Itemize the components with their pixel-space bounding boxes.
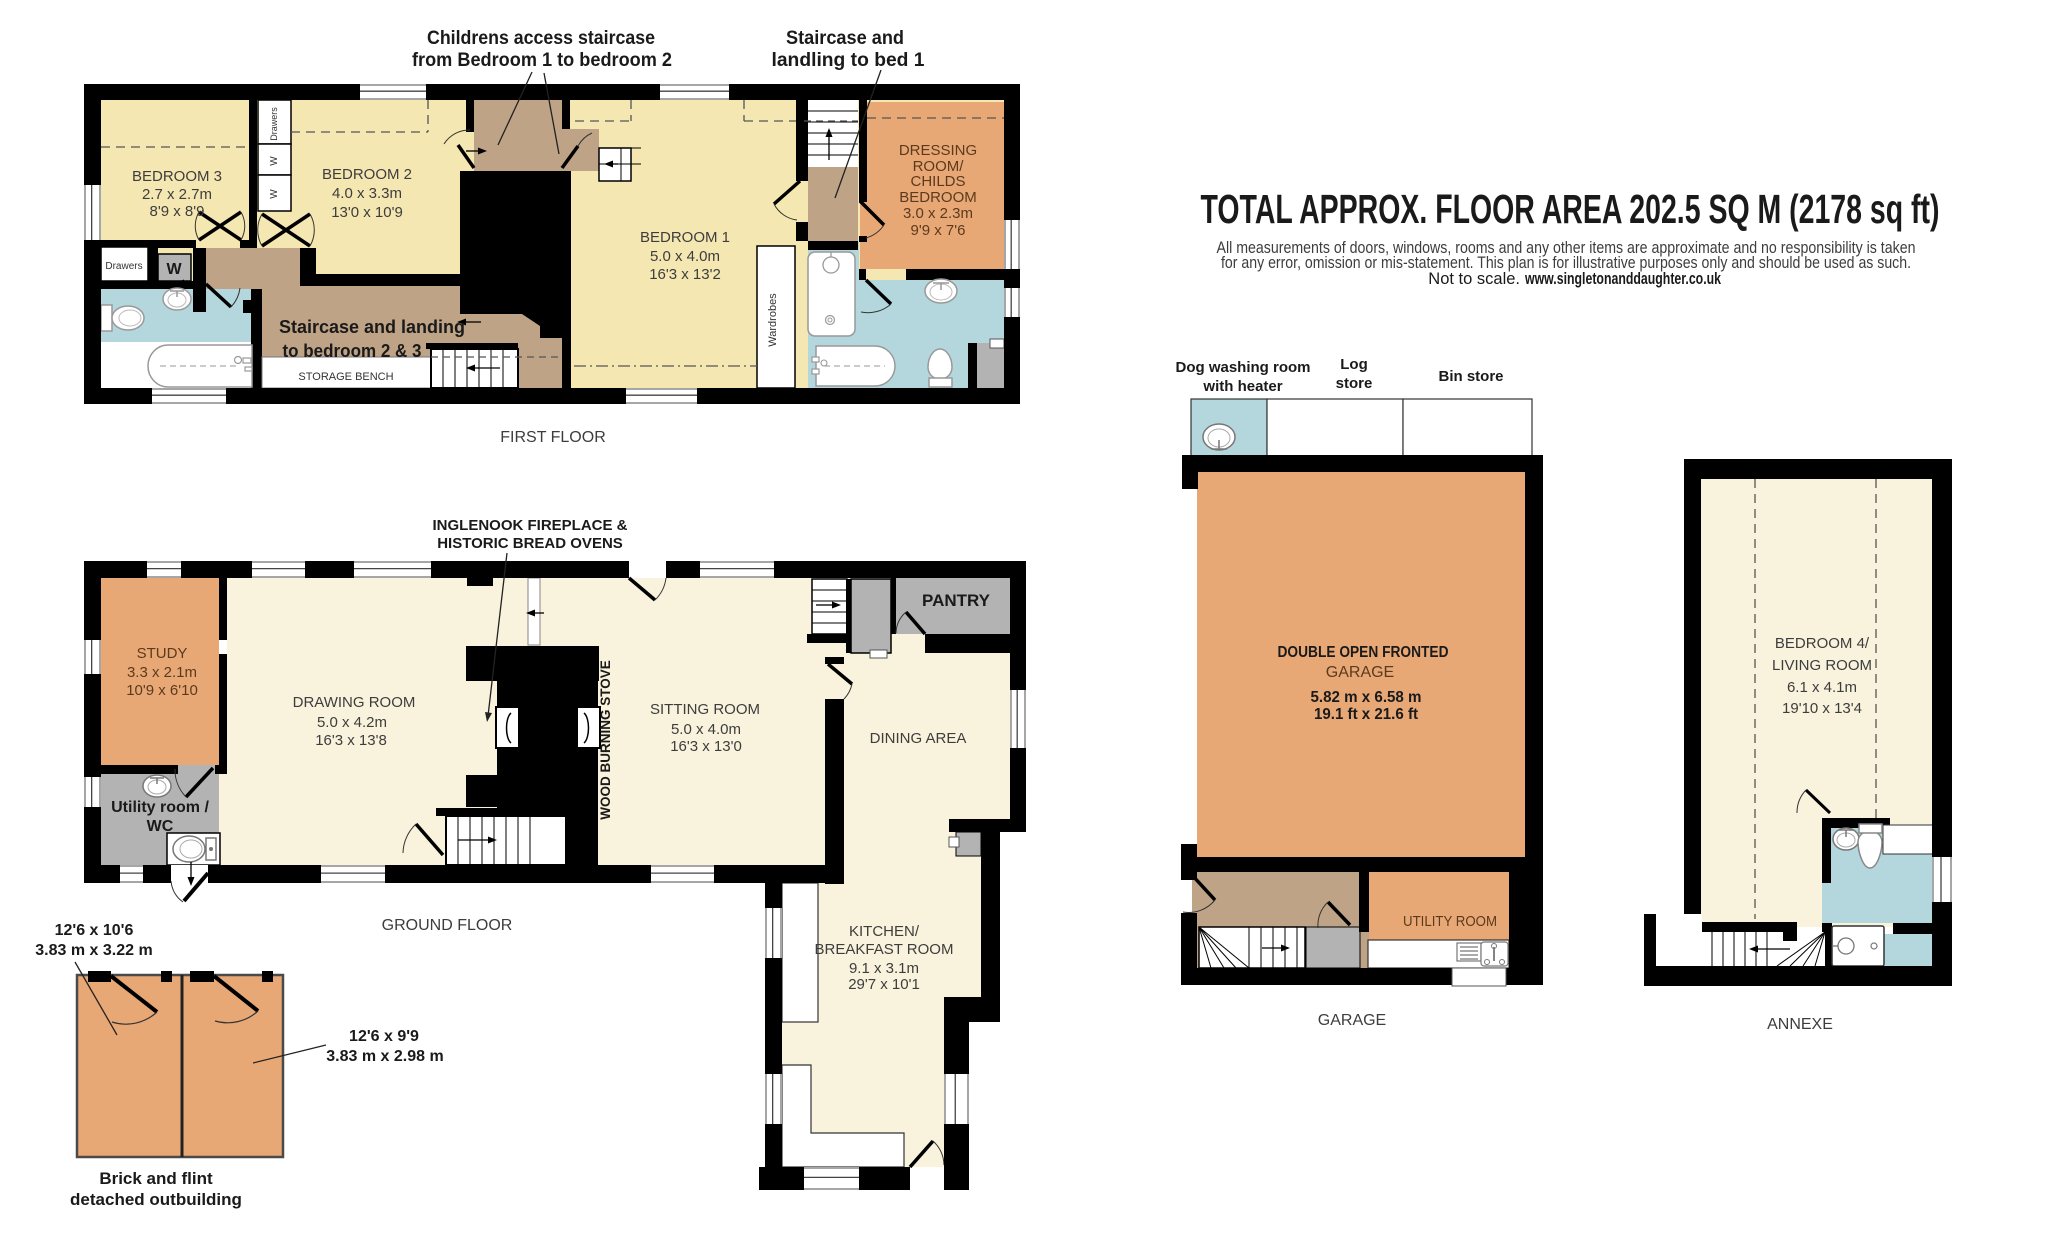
- svg-text:DOUBLE OPEN FRONTED: DOUBLE OPEN FRONTED: [1278, 644, 1449, 661]
- svg-text:store: store: [1336, 375, 1373, 392]
- svg-text:3.83 m x 2.98 m: 3.83 m x 2.98 m: [326, 1048, 443, 1065]
- svg-text:W: W: [269, 156, 280, 166]
- svg-text:5.82 m x 6.58 m: 5.82 m x 6.58 m: [1311, 689, 1422, 706]
- svg-text:BEDROOM 4/: BEDROOM 4/: [1775, 635, 1870, 652]
- svg-text:FIRST FLOOR: FIRST FLOOR: [500, 429, 606, 446]
- svg-text:Drawers: Drawers: [269, 107, 279, 141]
- svg-text:Wardrobes: Wardrobes: [767, 293, 779, 347]
- svg-text:5.0 x 4.0m: 5.0 x 4.0m: [650, 248, 720, 265]
- svg-text:9'9 x 7'6: 9'9 x 7'6: [911, 222, 966, 239]
- svg-text:Drawers: Drawers: [105, 261, 142, 272]
- svg-text:BREAKFAST ROOM: BREAKFAST ROOM: [815, 941, 954, 958]
- svg-text:PANTRY: PANTRY: [922, 591, 991, 610]
- svg-text:3.3 x 2.1m: 3.3 x 2.1m: [127, 664, 197, 681]
- svg-text:Utility room /: Utility room /: [111, 799, 209, 816]
- svg-text:CHILDS: CHILDS: [910, 173, 965, 190]
- svg-text:5.0 x 4.2m: 5.0 x 4.2m: [317, 714, 387, 731]
- svg-text:Childrens access staircase: Childrens access staircase: [427, 28, 655, 49]
- svg-text:SITTING ROOM: SITTING ROOM: [650, 701, 760, 718]
- svg-text:16'3 x 13'8: 16'3 x 13'8: [315, 732, 387, 749]
- svg-text:BEDROOM 2: BEDROOM 2: [322, 166, 412, 183]
- svg-text:2.7 x 2.7m: 2.7 x 2.7m: [142, 186, 212, 203]
- svg-text:BEDROOM 1: BEDROOM 1: [640, 229, 730, 246]
- svg-text:DRAWING ROOM: DRAWING ROOM: [293, 694, 416, 711]
- svg-text:3.83 m x 3.22 m: 3.83 m x 3.22 m: [35, 942, 152, 959]
- svg-text:WOOD BURNING STOVE: WOOD BURNING STOVE: [598, 660, 613, 820]
- svg-text:GARAGE: GARAGE: [1326, 664, 1394, 681]
- svg-text:with heater: with heater: [1202, 378, 1282, 395]
- svg-text:ANNEXE: ANNEXE: [1767, 1016, 1833, 1033]
- svg-text:12'6 x 9'9: 12'6 x 9'9: [349, 1028, 419, 1045]
- svg-text:Not to scale.: Not to scale.: [1428, 270, 1520, 288]
- svg-text:4.0 x 3.3m: 4.0 x 3.3m: [332, 185, 402, 202]
- svg-text:6.1 x 4.1m: 6.1 x 4.1m: [1787, 679, 1857, 696]
- svg-text:DRESSING: DRESSING: [899, 142, 977, 159]
- svg-text:12'6 x 10'6: 12'6 x 10'6: [55, 922, 134, 939]
- svg-text:W: W: [269, 189, 280, 199]
- svg-text:5.0 x 4.0m: 5.0 x 4.0m: [671, 721, 741, 738]
- svg-text:Dog washing room: Dog washing room: [1176, 359, 1311, 376]
- svg-text:13'0 x 10'9: 13'0 x 10'9: [331, 204, 403, 221]
- svg-text:LIVING ROOM: LIVING ROOM: [1772, 657, 1872, 674]
- svg-text:9.1 x 3.1m: 9.1 x 3.1m: [849, 960, 919, 977]
- svg-text:from Bedroom 1 to bedroom 2: from Bedroom 1 to bedroom 2: [412, 50, 672, 71]
- svg-text:Bin store: Bin store: [1438, 368, 1503, 385]
- svg-text:Brick and flint: Brick and flint: [99, 1169, 213, 1188]
- svg-text:19'10 x 13'4: 19'10 x 13'4: [1782, 700, 1862, 717]
- svg-text:29'7 x 10'1: 29'7 x 10'1: [848, 976, 920, 993]
- svg-text:16'3 x 13'2: 16'3 x 13'2: [649, 266, 721, 283]
- svg-text:DINING AREA: DINING AREA: [870, 730, 967, 747]
- svg-text:Staircase and: Staircase and: [786, 28, 904, 49]
- svg-text:www.singletonanddaughter.co.uk: www.singletonanddaughter.co.uk: [1524, 270, 1721, 288]
- svg-text:INGLENOOK FIREPLACE &: INGLENOOK FIREPLACE &: [432, 517, 627, 534]
- svg-text:8'9 x 8'9: 8'9 x 8'9: [150, 203, 205, 220]
- svg-text:HISTORIC BREAD OVENS: HISTORIC BREAD OVENS: [437, 535, 623, 552]
- svg-text:to bedroom 2 & 3: to bedroom 2 & 3: [283, 341, 422, 361]
- svg-text:UTILITY ROOM: UTILITY ROOM: [1403, 913, 1497, 930]
- svg-text:3.0 x 2.3m: 3.0 x 2.3m: [903, 205, 973, 222]
- svg-text:W: W: [166, 261, 182, 278]
- svg-text:16'3 x 13'0: 16'3 x 13'0: [670, 738, 742, 755]
- svg-text:BEDROOM: BEDROOM: [899, 189, 977, 206]
- svg-text:GARAGE: GARAGE: [1318, 1012, 1386, 1029]
- svg-text:landling to bed 1: landling to bed 1: [772, 50, 925, 71]
- svg-text:BEDROOM 3: BEDROOM 3: [132, 168, 222, 185]
- svg-text:TOTAL APPROX. FLOOR AREA 202.5: TOTAL APPROX. FLOOR AREA 202.5 SQ M (217…: [1201, 186, 1940, 232]
- svg-text:19.1 ft x 21.6 ft: 19.1 ft x 21.6 ft: [1314, 706, 1419, 723]
- svg-text:STUDY: STUDY: [137, 645, 188, 662]
- svg-text:KITCHEN/: KITCHEN/: [849, 923, 920, 940]
- svg-text:10'9 x 6'10: 10'9 x 6'10: [126, 682, 198, 699]
- svg-text:GROUND FLOOR: GROUND FLOOR: [382, 917, 513, 934]
- svg-text:Staircase and landing: Staircase and landing: [279, 317, 465, 337]
- svg-text:detached outbuilding: detached outbuilding: [70, 1190, 242, 1209]
- svg-text:WC: WC: [147, 818, 174, 835]
- svg-text:Log: Log: [1340, 356, 1368, 373]
- svg-text:STORAGE BENCH: STORAGE BENCH: [298, 371, 393, 383]
